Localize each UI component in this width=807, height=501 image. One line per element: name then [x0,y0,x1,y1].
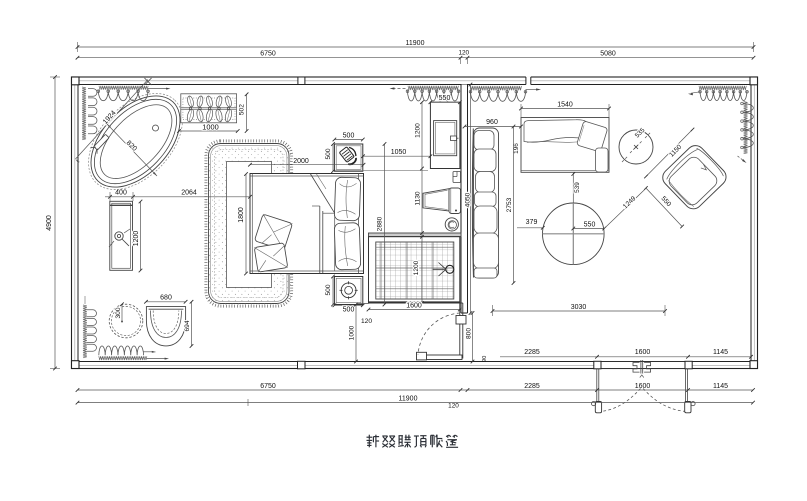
svg-text:1600: 1600 [406,303,422,310]
svg-text:3030: 3030 [571,304,587,311]
svg-text:5080: 5080 [600,51,616,58]
svg-text:550: 550 [584,221,596,228]
svg-text:196: 196 [513,143,520,154]
svg-text:400: 400 [115,189,127,196]
svg-text:500: 500 [325,148,332,159]
svg-text:1600: 1600 [635,383,651,390]
svg-text:539: 539 [574,182,581,193]
svg-text:4050: 4050 [465,192,472,207]
svg-text:550: 550 [439,95,451,102]
svg-text:500: 500 [325,284,332,295]
svg-text:2285: 2285 [524,383,540,390]
svg-text:1050: 1050 [391,149,407,156]
svg-text:300: 300 [115,307,122,318]
svg-text:6750: 6750 [260,51,276,58]
svg-text:2064: 2064 [181,189,197,196]
svg-text:379: 379 [526,219,538,226]
svg-text:960: 960 [486,119,498,126]
svg-text:680: 680 [160,295,172,302]
svg-text:120: 120 [458,49,469,56]
svg-text:1000: 1000 [348,325,355,340]
svg-text:500: 500 [343,133,355,140]
svg-text:1145: 1145 [713,349,728,356]
svg-text:2285: 2285 [524,349,540,356]
svg-text:2000: 2000 [293,158,309,165]
svg-text:1800: 1800 [238,207,245,223]
svg-text:1200: 1200 [414,123,421,138]
svg-text:6750: 6750 [260,383,276,390]
svg-text:120: 120 [361,318,372,325]
svg-text:1145: 1145 [713,383,728,390]
svg-text:120: 120 [448,402,459,409]
svg-text:1130: 1130 [414,191,421,206]
svg-text:4900: 4900 [46,215,53,231]
svg-text:1540: 1540 [557,101,573,108]
svg-text:694: 694 [184,320,191,331]
svg-text:90: 90 [482,356,488,362]
svg-text:500: 500 [343,307,355,314]
svg-text:1200: 1200 [133,231,140,247]
svg-text:2880: 2880 [376,216,383,231]
svg-text:11900: 11900 [399,396,418,403]
svg-text:1200: 1200 [413,260,420,275]
svg-text:2753: 2753 [506,197,513,212]
svg-text:1000: 1000 [202,122,218,131]
svg-text:1600: 1600 [635,349,651,356]
svg-text:502: 502 [239,104,246,115]
svg-text:11900: 11900 [406,40,425,47]
svg-text:800: 800 [465,328,472,339]
